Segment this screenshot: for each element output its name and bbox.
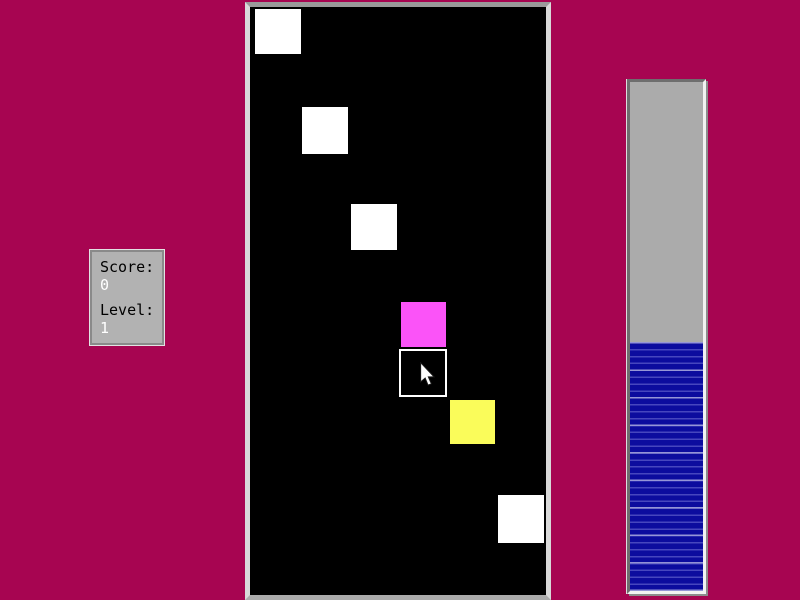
white-square-3[interactable] [351,204,397,250]
score-value: 0 [100,276,162,294]
level-label: Level: [100,301,162,319]
level-progress-bar [627,79,706,594]
game-board-frame [245,2,551,600]
magenta-square[interactable] [401,302,446,347]
progress-track [630,82,703,591]
score-label: Score: [100,258,162,276]
white-square-1[interactable] [255,9,301,54]
white-square-4[interactable] [498,495,544,543]
outlined-square[interactable] [399,349,447,397]
game-window: Score: 0 Level: 1 [0,0,800,600]
game-board[interactable] [250,7,546,595]
white-square-2[interactable] [302,107,348,154]
score-panel: Score: 0 Level: 1 [90,250,164,345]
progress-fill [630,342,703,591]
level-value: 1 [100,319,162,337]
yellow-square[interactable] [450,400,495,444]
